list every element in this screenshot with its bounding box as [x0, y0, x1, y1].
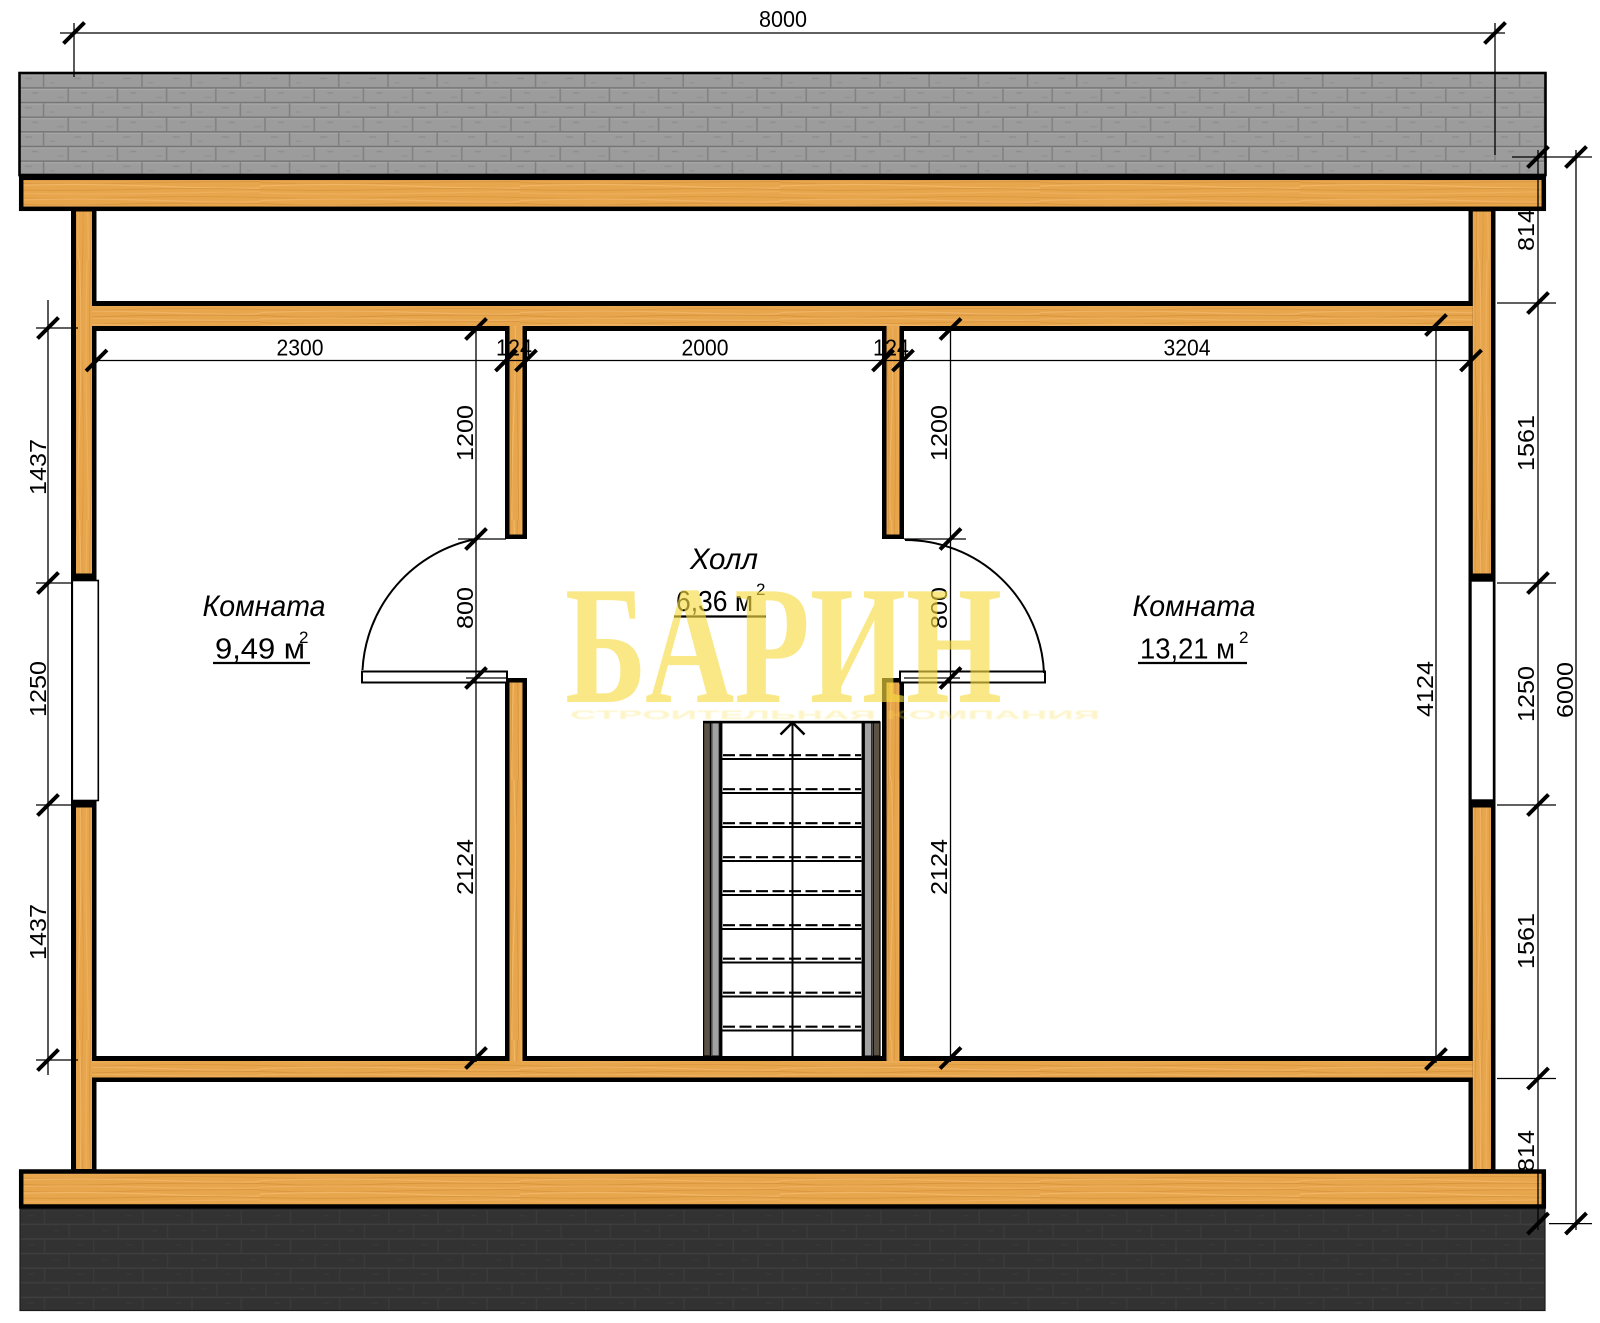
svg-text:2124: 2124 [452, 839, 478, 895]
svg-text:2: 2 [1239, 628, 1248, 647]
svg-text:1561: 1561 [1513, 913, 1539, 969]
svg-text:2124: 2124 [926, 839, 952, 895]
svg-text:1437: 1437 [25, 439, 51, 495]
svg-text:6000: 6000 [1552, 662, 1578, 718]
svg-text:814: 814 [1513, 1130, 1539, 1172]
svg-text:1561: 1561 [1513, 415, 1539, 471]
svg-text:1200: 1200 [926, 405, 952, 461]
svg-text:8000: 8000 [759, 6, 807, 32]
svg-text:1250: 1250 [1513, 666, 1539, 722]
svg-text:2: 2 [299, 628, 308, 647]
svg-text:1200: 1200 [452, 405, 478, 461]
svg-text:2000: 2000 [682, 335, 729, 361]
svg-text:3204: 3204 [1164, 335, 1211, 361]
svg-text:1437: 1437 [25, 904, 51, 960]
svg-text:124: 124 [496, 335, 532, 361]
svg-text:814: 814 [1513, 209, 1539, 251]
svg-text:СТРОИТЕЛЬНАЯ КОМПАНИЯ: СТРОИТЕЛЬНАЯ КОМПАНИЯ [570, 709, 1100, 722]
svg-text:13,21 м: 13,21 м [1140, 634, 1235, 666]
svg-text:1250: 1250 [25, 661, 51, 717]
svg-text:2300: 2300 [277, 335, 324, 361]
svg-text:Комната: Комната [203, 590, 326, 623]
svg-text:Комната: Комната [1133, 590, 1256, 623]
svg-text:800: 800 [452, 587, 478, 629]
svg-text:124: 124 [873, 335, 909, 361]
svg-text:4124: 4124 [1412, 661, 1438, 717]
svg-text:9,49 м: 9,49 м [215, 634, 305, 666]
